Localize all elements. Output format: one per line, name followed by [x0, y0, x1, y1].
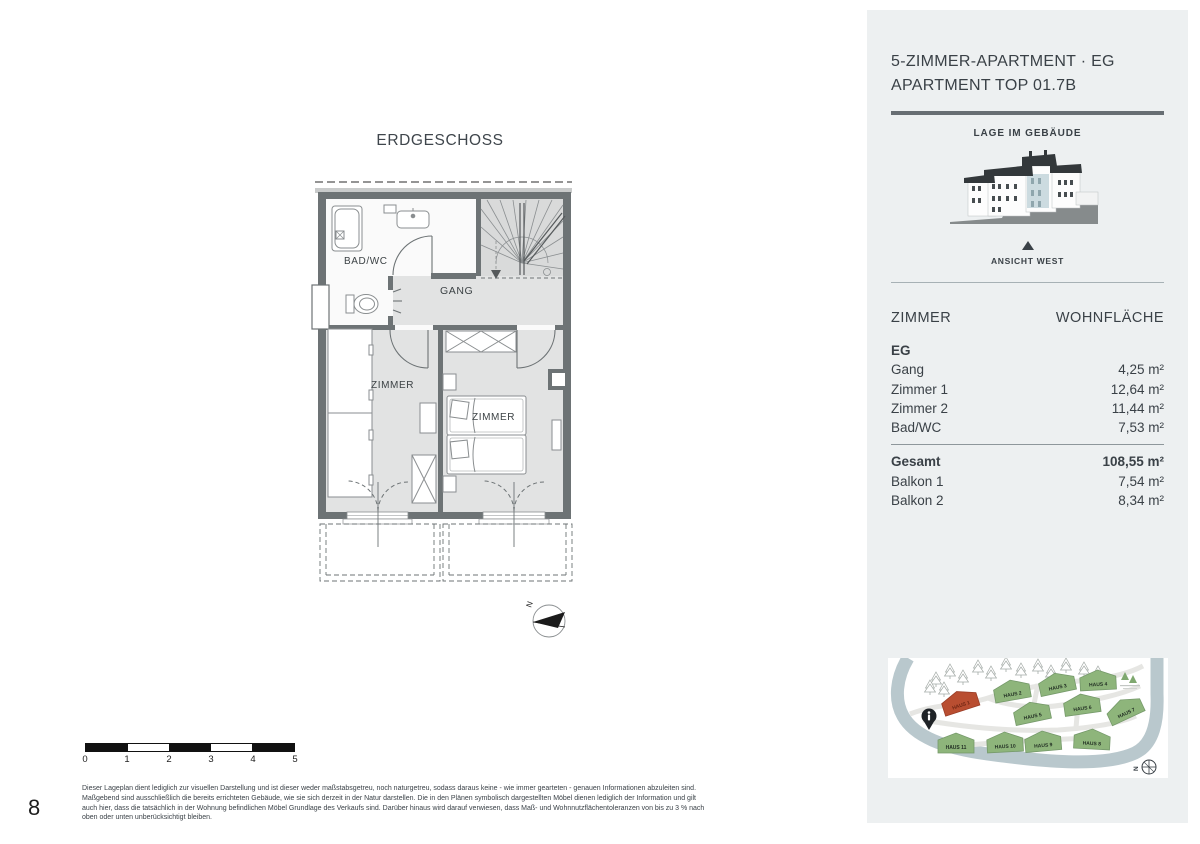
col-room-header: ZIMMER — [891, 310, 951, 326]
balconies — [320, 524, 572, 581]
divider-thin — [891, 282, 1164, 283]
row-label: Zimmer 1 — [891, 380, 948, 399]
table-row: Bad/WC 7,53 m² — [891, 418, 1164, 437]
apartment-title-line2: APARTMENT TOP 01.7B — [891, 74, 1164, 98]
disclaimer-line: Dieser Lageplan dient lediglich zur visu… — [82, 784, 802, 794]
compass-north-label: N — [1133, 766, 1140, 771]
floor-plan-drawing: N BAD/WC GANG ZIMMER ZIMMER — [300, 175, 600, 650]
nightstand-bottom — [443, 476, 456, 492]
scale-bar-segments — [85, 743, 295, 752]
radiator — [552, 420, 561, 450]
table-row: Zimmer 1 12,64 m² — [891, 380, 1164, 399]
house-label: HAUS 4 — [1089, 682, 1108, 689]
scale-bar: 0 1 2 3 4 5 — [85, 743, 295, 766]
table-row: Balkon 1 7,54 m² — [891, 472, 1164, 491]
table-divider — [891, 444, 1164, 445]
row-value: 7,53 m² — [1118, 418, 1164, 437]
north-arrow: N — [524, 600, 565, 637]
room-label-zimmer-left: ZIMMER — [371, 380, 414, 391]
area-table-header: ZIMMER WOHNFLÄCHE — [891, 310, 1164, 326]
page-number: 8 — [28, 795, 40, 821]
col-area-header: WOHNFLÄCHE — [1056, 310, 1164, 326]
scale-tick: 1 — [124, 754, 129, 765]
total-value: 108,55 m² — [1102, 452, 1164, 471]
toilet-icon — [346, 295, 378, 314]
house-label: HAUS 11 — [946, 745, 967, 751]
area-table: ZIMMER WOHNFLÄCHE EG Gang 4,25 m² Zimmer… — [891, 310, 1164, 510]
scale-tick: 0 — [82, 754, 87, 765]
bathtub-icon — [332, 206, 362, 251]
disclaimer-line: auch hier, dass die tatsächlich in der W… — [82, 804, 802, 814]
crossed-wardrobe — [412, 455, 436, 503]
double-bed — [447, 396, 526, 474]
apartment-info-panel: 5-ZIMMER-APARTMENT · EG APARTMENT TOP 01… — [867, 10, 1188, 823]
wardrobe-top-right — [446, 331, 516, 352]
floor-row: EG — [891, 341, 1164, 360]
gang-floor — [393, 276, 563, 325]
table-row: Balkon 2 8,34 m² — [891, 491, 1164, 510]
total-row: Gesamt 108,55 m² — [891, 452, 1164, 471]
row-label: Gang — [891, 360, 924, 379]
house-label: HAUS 10 — [995, 743, 1017, 750]
view-label: ANSICHT WEST — [891, 256, 1164, 266]
building-elevation — [948, 144, 1108, 234]
table-row: Gang 4,25 m² — [891, 360, 1164, 379]
wall-niche-glass — [552, 373, 565, 386]
north-label: N — [524, 600, 535, 609]
wc-window — [312, 285, 329, 329]
location-heading: LAGE IM GEBÄUDE — [891, 128, 1164, 139]
row-label: Bad/WC — [891, 418, 941, 437]
house-label: HAUS 8 — [1082, 741, 1101, 748]
floorplan-title: ERDGESCHOSS — [300, 132, 580, 150]
row-label: Balkon 2 — [891, 491, 944, 510]
row-label: Zimmer 2 — [891, 399, 948, 418]
brochure-page: { "page": { "number": "8" }, "plan": { "… — [0, 0, 1200, 844]
view-direction-icon — [1022, 241, 1034, 250]
row-value: 11,44 m² — [1112, 399, 1164, 418]
apartment-title-line1: 5-ZIMMER-APARTMENT · EG — [891, 50, 1164, 74]
floor-label: EG — [891, 341, 911, 360]
site-plan: HAUS 1 HAUS 2 HAUS 3 HAUS 4 HAUS 5 — [888, 658, 1168, 778]
scale-tick: 4 — [250, 754, 255, 765]
disclaimer-line: Maßgebend sind ausschließlich die bereit… — [82, 794, 802, 804]
row-label: Balkon 1 — [891, 472, 944, 491]
room-label-gang: GANG — [440, 285, 473, 297]
room-label-zimmer-right: ZIMMER — [472, 412, 515, 423]
disclaimer-text: Dieser Lageplan dient lediglich zur visu… — [82, 784, 802, 823]
wardrobe-left — [328, 329, 373, 497]
scale-tick: 3 — [208, 754, 213, 765]
nightstand-top — [443, 374, 456, 390]
row-value: 4,25 m² — [1118, 360, 1164, 379]
divider-thick — [891, 111, 1164, 115]
table-row: Zimmer 2 11,44 m² — [891, 399, 1164, 418]
room-label-bad-wc: BAD/WC — [344, 256, 388, 267]
total-label: Gesamt — [891, 452, 941, 471]
scale-bar-ticks: 0 1 2 3 4 5 — [85, 754, 295, 766]
disclaimer-line: oben oder unten unberücksichtigt bleiben… — [82, 813, 802, 823]
scale-tick: 5 — [292, 754, 297, 765]
row-value: 8,34 m² — [1118, 491, 1164, 510]
apartment-title: 5-ZIMMER-APARTMENT · EG APARTMENT TOP 01… — [891, 10, 1164, 98]
row-value: 12,64 m² — [1111, 380, 1164, 399]
row-value: 7,54 m² — [1118, 472, 1164, 491]
scale-tick: 2 — [166, 754, 171, 765]
desk — [420, 403, 436, 433]
